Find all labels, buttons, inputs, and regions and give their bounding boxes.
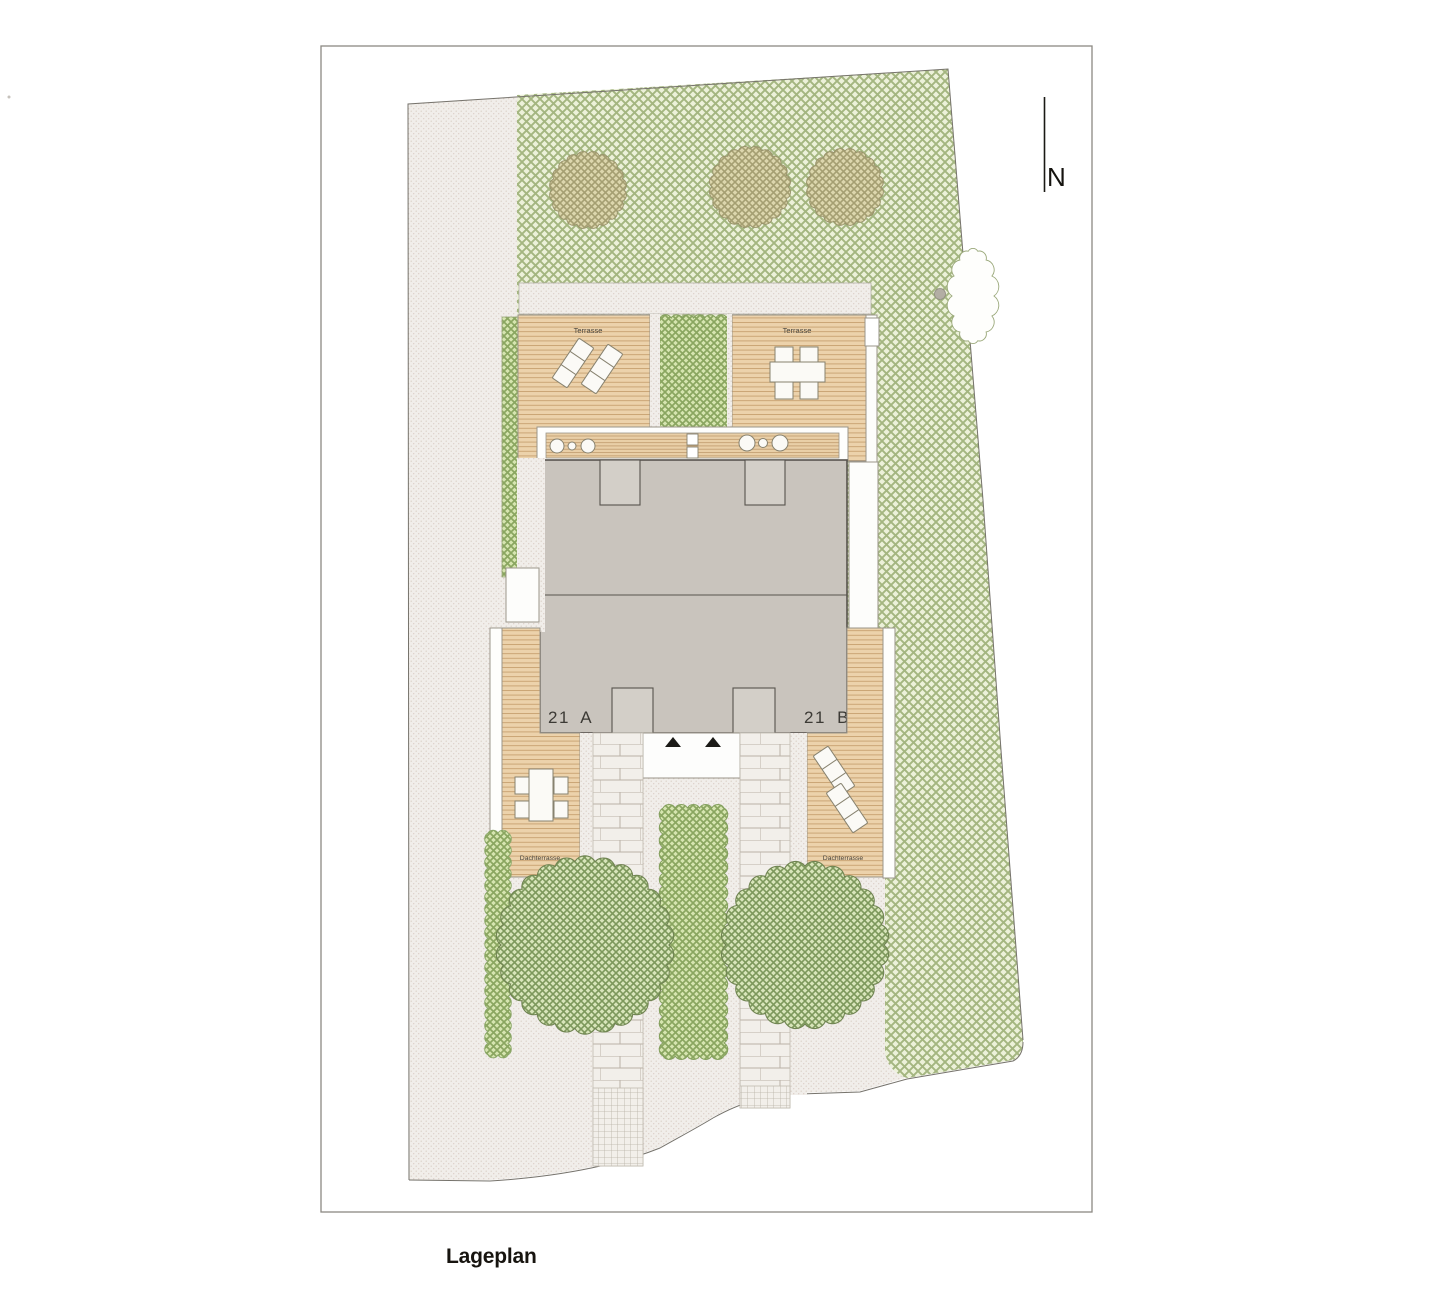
hedge-strip-west-upper	[502, 317, 518, 577]
site-plan-page: Terrasse Terrasse	[0, 0, 1440, 1305]
north-arrow: N	[1045, 97, 1066, 192]
page-title: Lageplan	[446, 1245, 537, 1268]
unit-label-21a: 21 A	[548, 708, 593, 727]
driveway-cobble-end	[740, 1086, 790, 1108]
roof-terrace-right-label: Dachterrasse	[823, 855, 864, 862]
balcony-deck	[537, 427, 848, 461]
entrance-slab	[643, 733, 740, 778]
print-artifact-dot	[8, 96, 11, 99]
unit-label-21b: 21 B	[804, 708, 850, 727]
north-label: N	[1047, 162, 1066, 192]
roof-notch	[612, 688, 653, 733]
tree-olive-3	[807, 149, 884, 226]
shrub-east	[947, 248, 999, 343]
deck-divider	[687, 434, 698, 445]
gravel-band-north	[519, 283, 871, 314]
roof-notch	[733, 688, 775, 733]
tree-large-left	[496, 856, 673, 1034]
hedge-north-center	[656, 315, 730, 431]
site-plan-drawing: Terrasse Terrasse	[0, 0, 1440, 1305]
step-east	[865, 318, 879, 346]
roof-terrace-left-label: Dachterrasse	[520, 855, 561, 862]
stone-east	[935, 289, 946, 300]
building-body	[540, 460, 847, 733]
roof-notch	[600, 460, 640, 505]
driveway-cobble-end	[593, 1088, 643, 1166]
terrace-left-label: Terrasse	[574, 326, 603, 335]
edge-strip	[883, 628, 895, 878]
west-court-slab	[506, 568, 539, 622]
terrace-right-label: Terrasse	[783, 326, 812, 335]
tree-olive-1	[550, 152, 627, 229]
building-footprint: 21 A 21 B	[540, 460, 850, 733]
east-court-slab	[849, 462, 878, 630]
roof-notch	[745, 460, 785, 505]
tree-olive-2	[710, 147, 791, 228]
deck-divider	[687, 447, 698, 458]
